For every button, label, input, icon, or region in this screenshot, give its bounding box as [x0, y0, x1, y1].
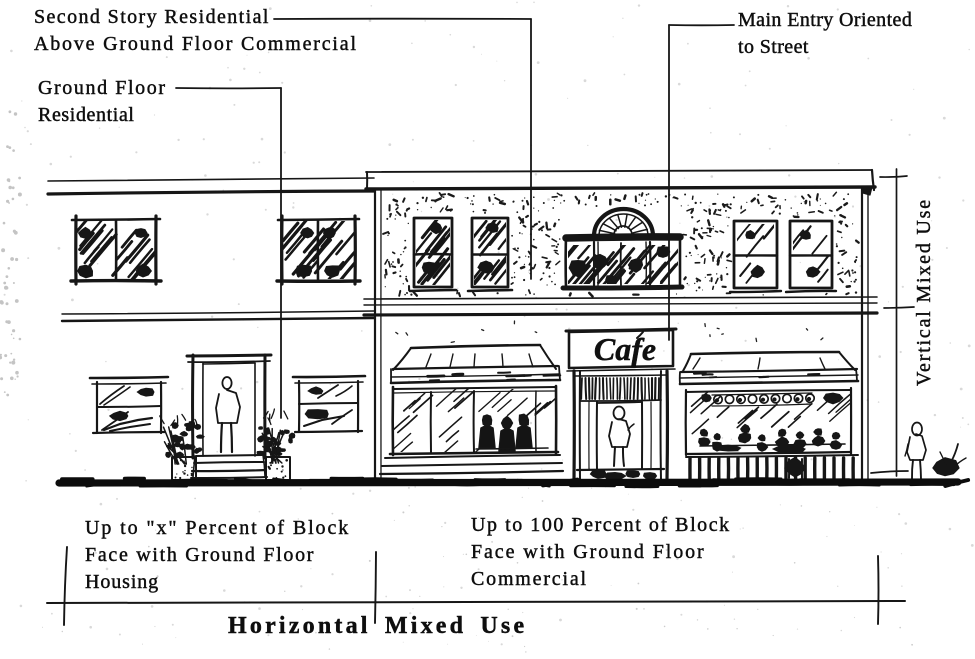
svg-text:Housing: Housing: [85, 571, 159, 593]
svg-text:Up to 100 Percent of Block: Up to 100 Percent of Block: [471, 514, 731, 536]
svg-text:Up to "x" Percent of Block: Up to "x" Percent of Block: [85, 517, 350, 539]
svg-text:Main Entry Oriented: Main Entry Oriented: [738, 9, 912, 31]
svg-text:Horizontal Mixed Use: Horizontal Mixed Use: [228, 613, 527, 639]
svg-text:Face with Ground Floor: Face with Ground Floor: [85, 544, 315, 566]
svg-text:Ground Floor: Ground Floor: [38, 77, 167, 99]
svg-text:Second Story Residential: Second Story Residential: [34, 6, 270, 28]
svg-text:Commercial: Commercial: [471, 568, 588, 590]
svg-text:Vertical Mixed Use: Vertical Mixed Use: [913, 198, 935, 386]
svg-text:Cafe: Cafe: [594, 331, 656, 367]
svg-text:Above Ground Floor Commercial: Above Ground Floor Commercial: [34, 33, 358, 55]
svg-text:Residential: Residential: [38, 104, 135, 126]
svg-text:to Street: to Street: [738, 36, 809, 58]
svg-text:Face with Ground Floor: Face with Ground Floor: [471, 541, 706, 563]
